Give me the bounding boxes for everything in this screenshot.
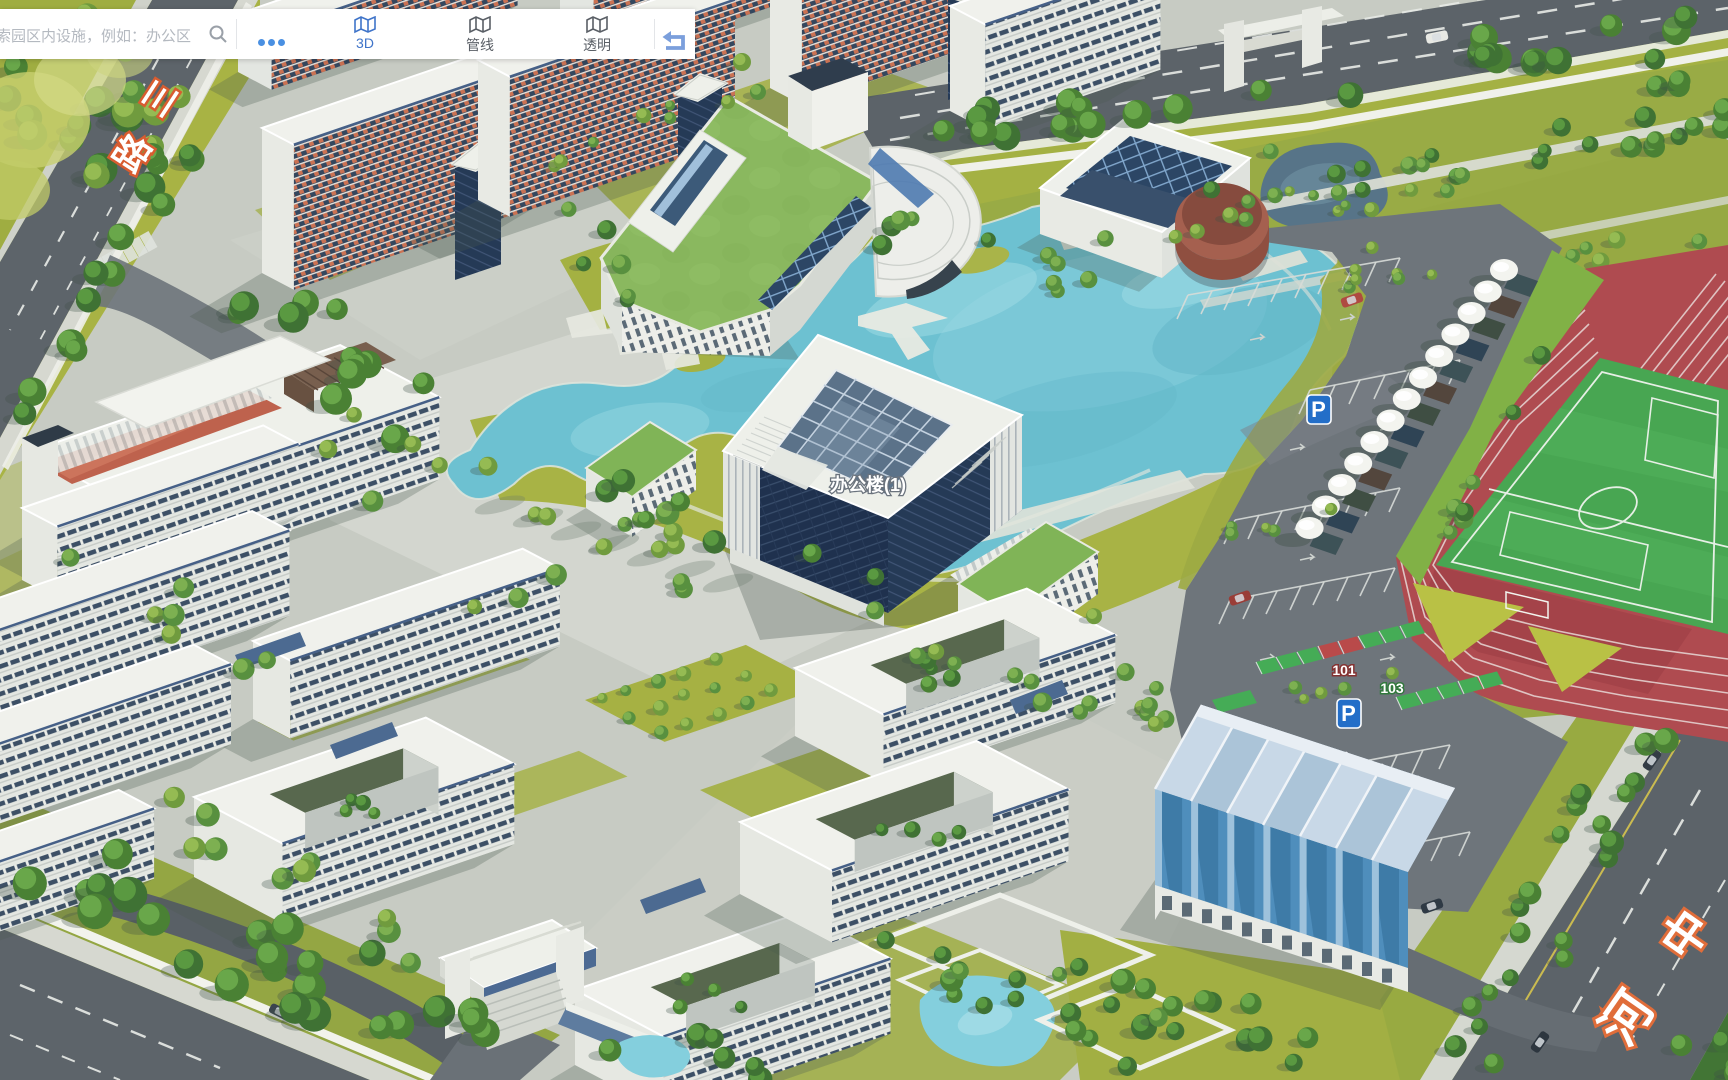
svg-text:P: P bbox=[1341, 701, 1356, 726]
svg-text:101: 101 bbox=[1332, 662, 1356, 678]
svg-text:103: 103 bbox=[1380, 680, 1404, 696]
svg-text:办公楼(1): 办公楼(1) bbox=[830, 474, 906, 495]
svg-text:P: P bbox=[1311, 397, 1326, 422]
